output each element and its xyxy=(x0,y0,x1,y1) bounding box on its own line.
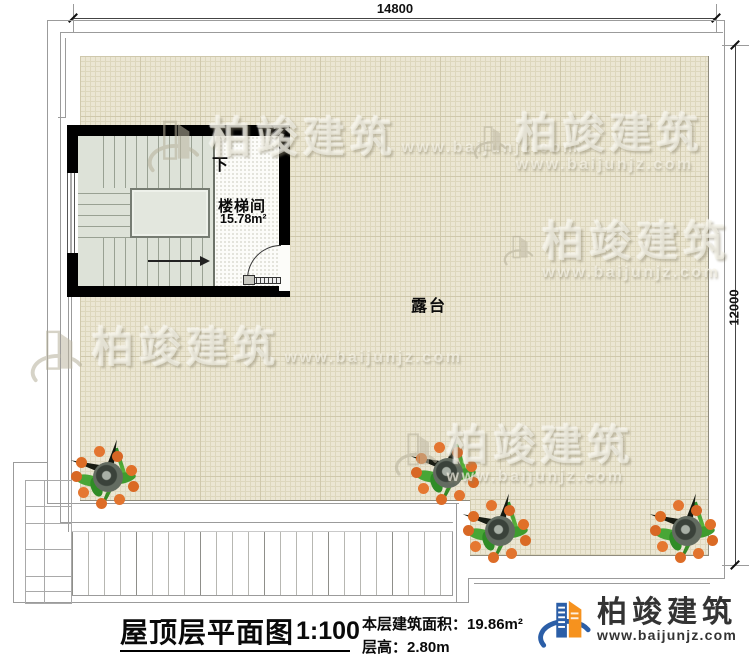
terrace-edge xyxy=(708,56,709,556)
roof-outline-line xyxy=(13,462,14,603)
roof-outline-line xyxy=(724,20,725,579)
stair-direction-arrow xyxy=(148,260,200,262)
roof-outline-line xyxy=(13,462,48,463)
stair-treads-upper xyxy=(103,136,213,188)
roof-outline-line xyxy=(456,503,457,602)
roof-outline-line xyxy=(65,38,66,118)
company-website: www.baijunjz.com xyxy=(597,627,737,643)
roof-outline-line xyxy=(47,20,725,21)
door-hinge-block xyxy=(243,275,255,285)
roof-outline-line xyxy=(47,503,459,504)
stairwell-area-label: 15.78m² xyxy=(220,212,267,226)
drawing-title: 屋顶层平面图 xyxy=(120,611,294,651)
watermark-logo-icon xyxy=(26,326,84,388)
top-dimension-line xyxy=(73,18,716,19)
company-name: 柏竣建筑 xyxy=(597,597,737,629)
terrace-edge xyxy=(470,555,709,556)
roof-outline-line xyxy=(468,578,725,579)
top-dimension-value: 14800 xyxy=(360,1,430,16)
roof-outline-line xyxy=(60,32,723,33)
roof-outline-line xyxy=(58,117,66,118)
floor-area-note: 本层建筑面积：19.86m² xyxy=(362,613,523,634)
roof-outline-line xyxy=(60,522,453,523)
arrow-head-icon xyxy=(200,256,210,266)
roof-outline-line xyxy=(13,602,469,603)
terrace-label: 露台 xyxy=(411,292,447,316)
stair-direction-label: 下 xyxy=(212,151,228,175)
right-dimension-value: 12000 xyxy=(727,268,742,348)
roof-outline-line xyxy=(60,32,61,523)
company-logo-icon xyxy=(536,597,592,653)
stair-treads-lower xyxy=(103,238,213,286)
floor-height-note: 层高：2.80m xyxy=(362,636,450,657)
floor-plan-canvas: 14800 12000 xyxy=(0,0,750,667)
roof-tile-band xyxy=(72,531,453,596)
terrace-floor-extension xyxy=(470,499,708,555)
company-logo: 柏竣建筑 www.baijunjz.com xyxy=(536,597,737,653)
stair-winders xyxy=(78,183,130,238)
stairwell: 下 楼梯间 15.78m² xyxy=(67,125,290,297)
terrace-edge xyxy=(80,500,471,501)
roof-outline-line xyxy=(474,583,710,584)
side-roof-strip xyxy=(25,480,72,604)
title-underline xyxy=(120,650,350,652)
stair-landing xyxy=(130,188,210,238)
roof-outline-line xyxy=(47,20,48,504)
roof-outline-line xyxy=(468,578,469,603)
window-icon xyxy=(67,173,78,253)
drawing-scale: 1:100 xyxy=(296,617,360,646)
